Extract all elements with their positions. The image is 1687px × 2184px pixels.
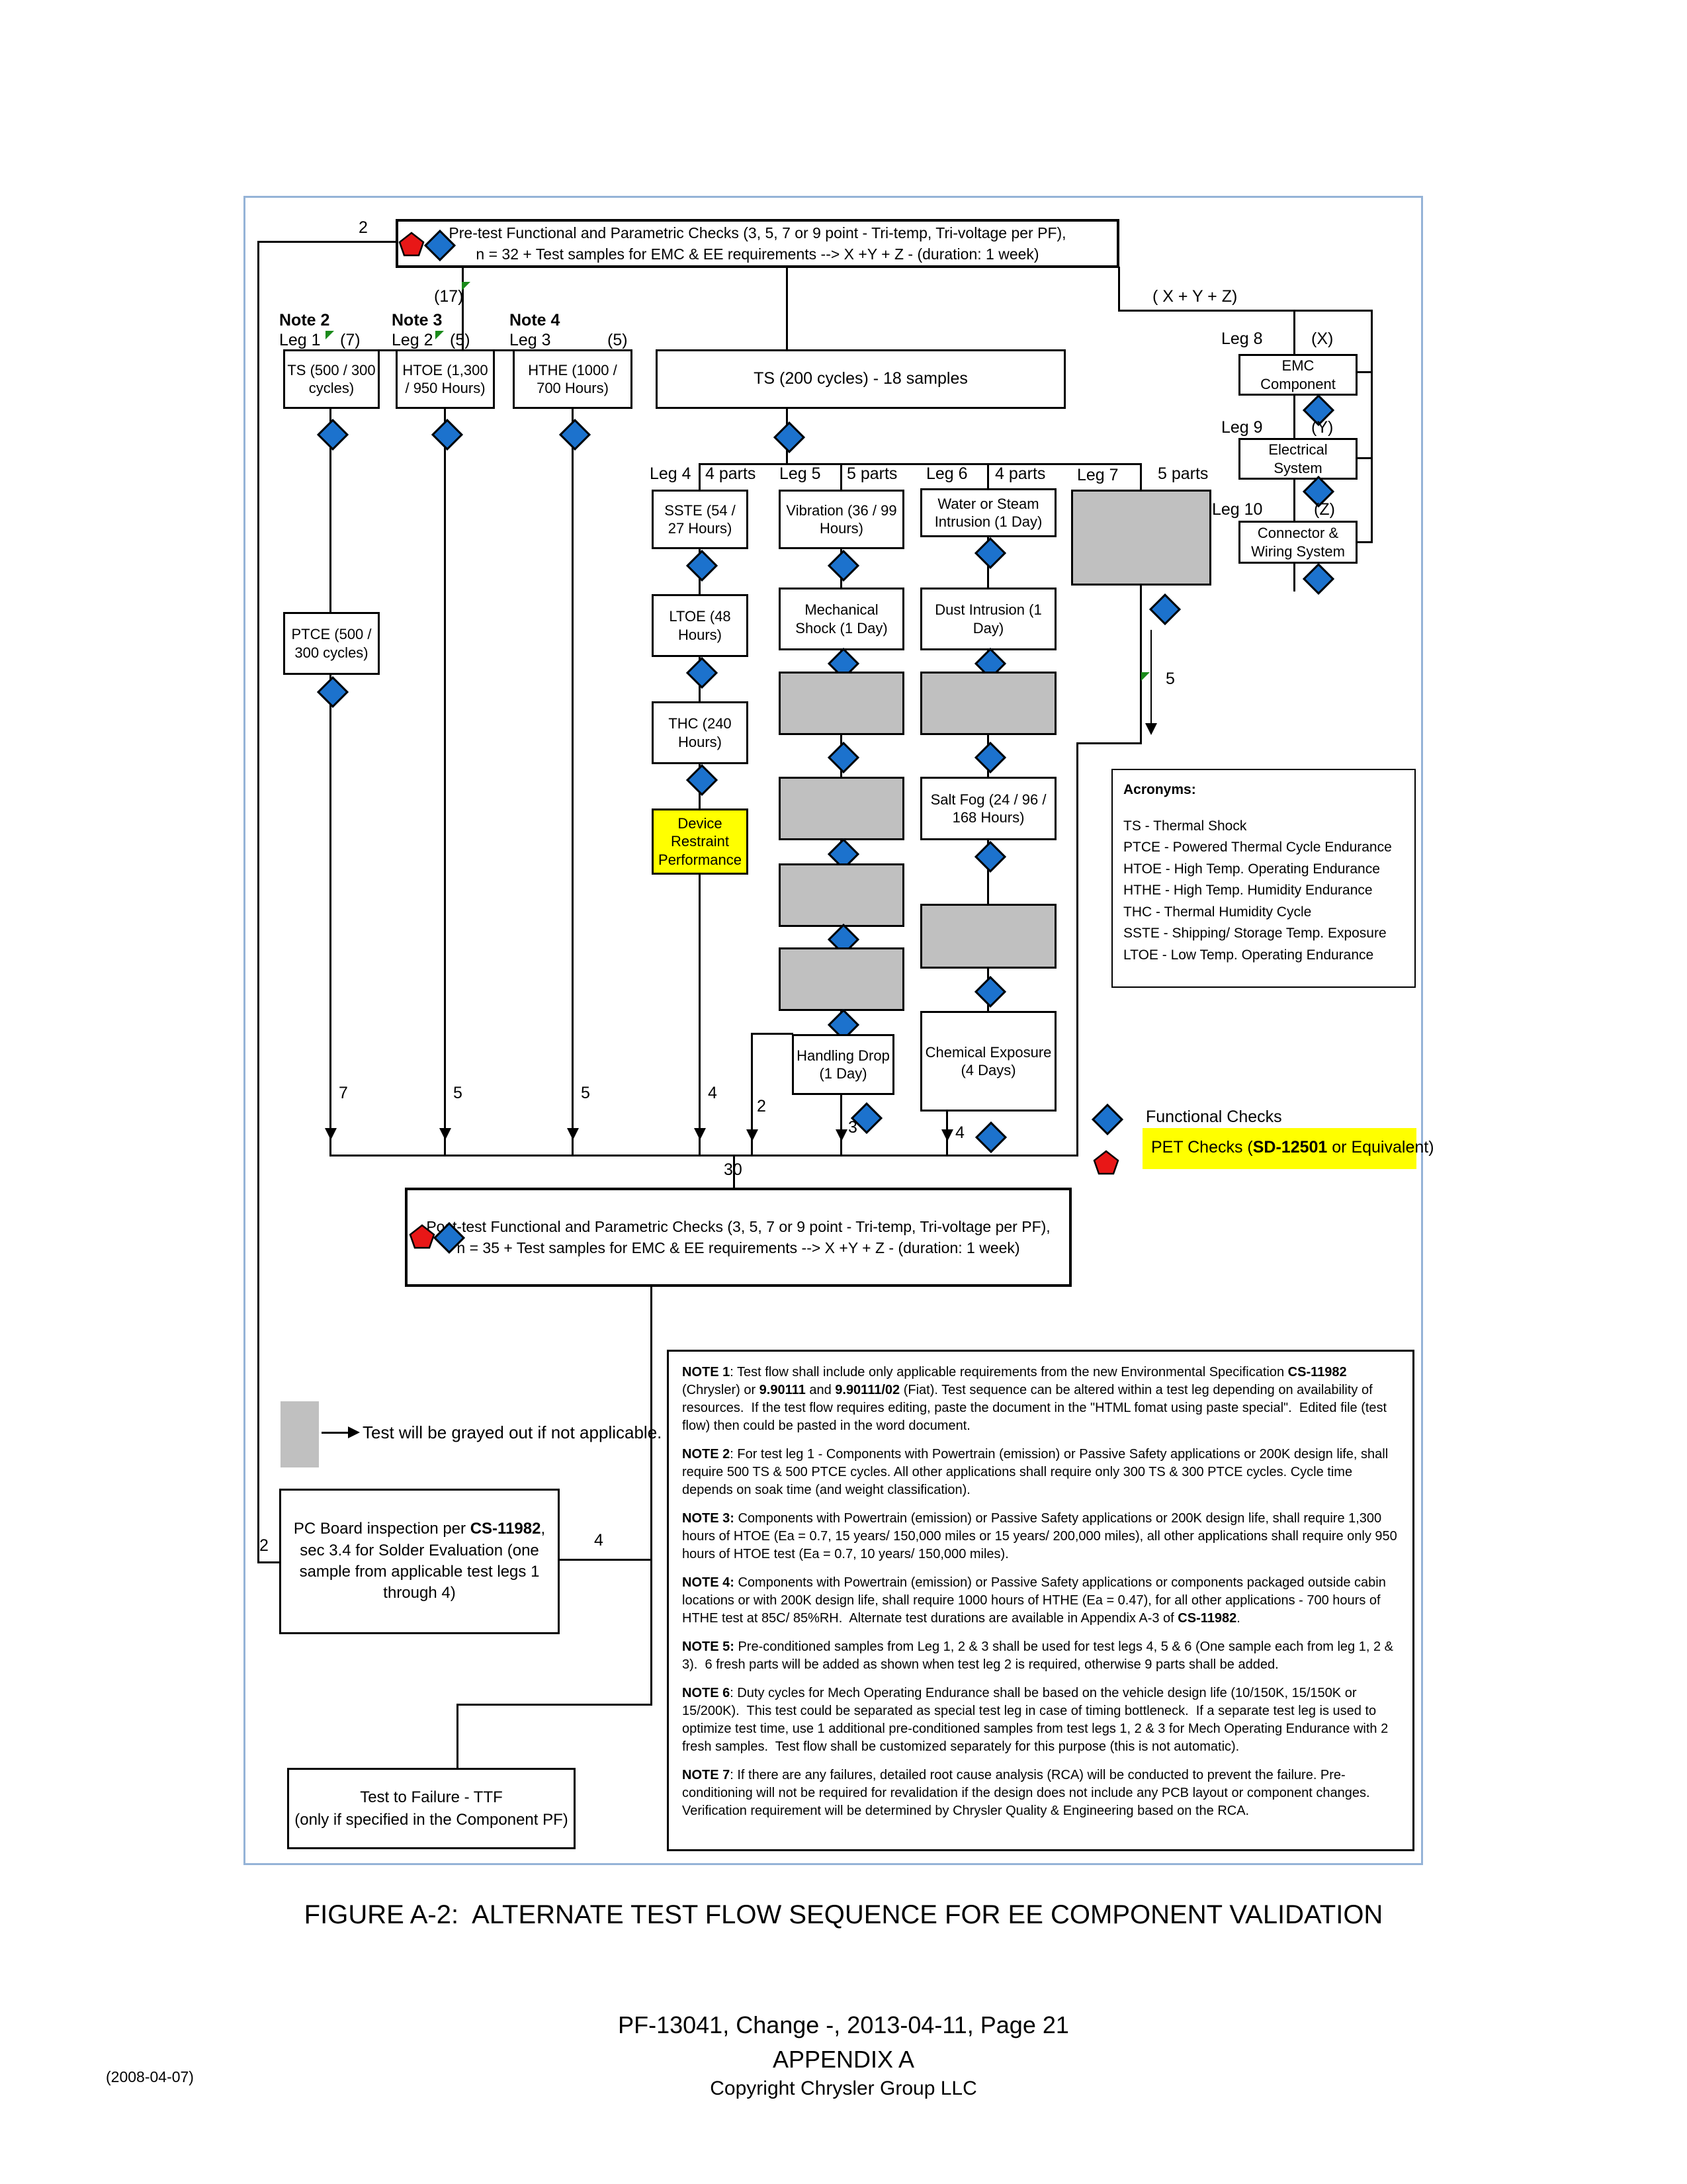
connector-line: [1076, 744, 1078, 1156]
sample-count: 2: [359, 218, 368, 238]
thc-label: THC (240 Hours): [656, 715, 744, 751]
arrow-down-icon: [694, 1128, 706, 1140]
htoe-label: HTOE (1,300 / 950 Hours): [400, 361, 491, 398]
vibration-box: Vibration (36 / 99 Hours): [779, 490, 904, 549]
connector-line: [1118, 310, 1373, 312]
connector-line: [1293, 310, 1295, 354]
handling-drop-label: Handling Drop (1 Day): [796, 1047, 890, 1083]
arrow-down-icon: [325, 1128, 337, 1140]
connector-line: [456, 1706, 458, 1769]
leg7-out-count: 5: [1166, 670, 1175, 689]
ts200-label: TS (200 cycles) - 18 samples: [754, 369, 968, 389]
salt-fog-box: Salt Fog (24 / 96 / 168 Hours): [920, 777, 1057, 840]
acronym-item: THC - Thermal Humidity Cycle: [1123, 902, 1414, 924]
arrow-down-icon: [567, 1128, 579, 1140]
acronym-item: HTHE - High Temp. Humidity Endurance: [1123, 880, 1414, 902]
pc-board-right-count: 4: [594, 1531, 603, 1550]
hthe-label: HTHE (1000 / 700 Hours): [517, 361, 628, 398]
leg1-note: Note 2: [279, 311, 329, 330]
ttf-line2: (only if specified in the Component PF): [294, 1809, 568, 1831]
connector-line: [1358, 457, 1371, 459]
connector-wiring-label: Connector & Wiring System: [1242, 524, 1354, 560]
mech-shock-box: Mechanical Shock (1 Day): [779, 588, 904, 650]
connector-line: [322, 1432, 349, 1434]
dust-label: Dust Intrusion (1 Day): [924, 601, 1053, 637]
ptce-label: PTCE (500 / 300 cycles): [287, 625, 376, 662]
dust-box: Dust Intrusion (1 Day): [920, 588, 1057, 650]
pretest-line1: Pre-test Functional and Parametric Check…: [449, 222, 1066, 243]
handling-drop-box: Handling Drop (1 Day): [792, 1034, 894, 1095]
posttest-checks-box: Post-test Functional and Parametric Chec…: [405, 1188, 1072, 1287]
branch-xyz-label: ( X + Y + Z): [1152, 287, 1237, 306]
figure-title: FIGURE A-2: ALTERNATE TEST FLOW SEQUENCE…: [0, 1900, 1687, 1930]
leg3-count: (5): [607, 331, 628, 350]
leg10-count: (Z): [1314, 500, 1335, 519]
leg1-label: Leg 1: [279, 331, 321, 350]
leg5-skip-count: 2: [757, 1097, 766, 1116]
ts200-box: TS (200 cycles) - 18 samples: [656, 349, 1066, 409]
note-7: NOTE 7: If there are any failures, detai…: [682, 1767, 1399, 1820]
pretest-line2: n = 32 + Test samples for EMC & EE requi…: [476, 243, 1039, 265]
acronym-item: LTOE - Low Temp. Operating Endurance: [1123, 945, 1414, 967]
connector-line: [1293, 564, 1295, 591]
ptce-box: PTCE (500 / 300 cycles): [283, 612, 380, 675]
arrow-down-icon: [746, 1129, 758, 1141]
grayed-test-box: [779, 863, 904, 927]
connector-line: [987, 465, 989, 490]
doc-reference: PF-13041, Change -, 2013-04-11, Page 21: [0, 2011, 1687, 2039]
leg5-count: 5 parts: [847, 464, 897, 484]
note-5: NOTE 5: Pre-conditioned samples from Leg…: [682, 1638, 1399, 1674]
acronym-item: SSTE - Shipping/ Storage Temp. Exposure: [1123, 923, 1414, 945]
legend-functional-label: Functional Checks: [1146, 1108, 1282, 1127]
note-4: NOTE 4: Components with Powertrain (emis…: [682, 1574, 1399, 1628]
connector-line: [699, 465, 701, 490]
grayed-test-box: [779, 672, 904, 735]
grayed-test-box: [779, 947, 904, 1011]
connector-line: [1293, 480, 1295, 521]
connector-line: [752, 1033, 793, 1035]
connector-line: [257, 241, 397, 243]
connector-line: [650, 1287, 652, 1705]
connector-line: [560, 1559, 650, 1561]
pet-check-icon: [398, 232, 425, 257]
connector-line: [572, 409, 574, 1156]
leg1-out-count: 7: [339, 1084, 348, 1103]
copyright-label: Copyright Chrysler Group LLC: [0, 2077, 1687, 2100]
grayed-test-box: [920, 904, 1057, 969]
connector-line: [257, 1561, 281, 1563]
gray-swatch: [281, 1401, 319, 1467]
posttest-line1: Post-test Functional and Parametric Chec…: [426, 1216, 1050, 1237]
water-steam-label: Water or Steam Intrusion (1 Day): [924, 495, 1053, 531]
acronym-item: TS - Thermal Shock: [1123, 816, 1414, 838]
ttf-line1: Test to Failure - TTF: [360, 1786, 503, 1809]
leg2-label: Leg 2: [392, 331, 433, 350]
leg10-label: Leg 10: [1212, 500, 1262, 519]
leg6-label: Leg 6: [926, 464, 968, 484]
emc-label: EMC Component: [1242, 357, 1354, 393]
document-page: Pre-test Functional and Parametric Check…: [0, 0, 1687, 2184]
pc-board-box: PC Board inspection per CS-11982, sec 3.…: [279, 1489, 560, 1634]
ts-box: TS (500 / 300 cycles): [283, 349, 380, 409]
sste-box: SSTE (54 / 27 Hours): [652, 490, 748, 549]
grayed-leg7-box: [1071, 490, 1211, 586]
note-1: NOTE 1: Test flow shall include only app…: [682, 1364, 1399, 1435]
connector-line: [840, 465, 842, 490]
note-2: NOTE 2: For test leg 1 - Components with…: [682, 1446, 1399, 1499]
connector-line: [1076, 742, 1142, 744]
leg2-count: (5): [450, 331, 470, 350]
leg9-label: Leg 9: [1221, 418, 1263, 437]
connector-line: [1358, 371, 1371, 373]
htoe-box: HTOE (1,300 / 950 Hours): [396, 349, 495, 409]
connector-line: [699, 875, 701, 1156]
ts-label: TS (500 / 300 cycles): [287, 361, 376, 398]
chemical-exposure-label: Chemical Exposure (4 Days): [924, 1043, 1053, 1080]
pet-check-icon: [409, 1224, 435, 1249]
thc-box: THC (240 Hours): [652, 701, 748, 764]
appendix-label: APPENDIX A: [0, 2046, 1687, 2074]
acronyms-panel: Acronyms: TS - Thermal Shock PTCE - Powe…: [1111, 769, 1416, 988]
acronyms-title: Acronyms:: [1123, 779, 1414, 801]
arrow-down-icon: [1145, 723, 1157, 735]
connector-line: [1293, 396, 1295, 438]
leg4-out-count: 4: [708, 1084, 717, 1103]
pc-board-left-count: 2: [259, 1536, 269, 1555]
connector-line: [1118, 267, 1120, 311]
leg5-drop-count: 3: [848, 1118, 857, 1137]
connector-line: [1358, 541, 1371, 543]
connector-line: [699, 463, 1142, 465]
leg9-count: (Y): [1311, 418, 1333, 437]
leg7-label: Leg 7: [1077, 466, 1119, 485]
connector-line: [456, 1704, 652, 1706]
leg1-count: (7): [340, 331, 361, 350]
posttest-line2: n = 35 + Test samples for EMC & EE requi…: [456, 1237, 1019, 1258]
grayed-note-label: Test will be grayed out if not applicabl…: [363, 1422, 662, 1443]
leg5-label: Leg 5: [779, 464, 821, 484]
leg8-label: Leg 8: [1221, 329, 1263, 349]
connector-line: [257, 241, 259, 1563]
leg3-label: Leg 3: [509, 331, 551, 350]
connector-wiring-box: Connector & Wiring System: [1238, 521, 1358, 564]
sste-label: SSTE (54 / 27 Hours): [656, 502, 744, 538]
leg7-count: 5 parts: [1158, 464, 1208, 484]
emc-component-box: EMC Component: [1238, 354, 1358, 396]
note-3: NOTE 3: Components with Powertrain (emis…: [682, 1510, 1399, 1563]
pc-board-label: PC Board inspection per CS-11982, sec 3.…: [288, 1518, 551, 1604]
mech-shock-label: Mechanical Shock (1 Day): [783, 601, 900, 637]
note-6: NOTE 6: Duty cycles for Mech Operating E…: [682, 1684, 1399, 1756]
acronym-item: HTOE - High Temp. Operating Endurance: [1123, 859, 1414, 881]
branch-count-17: (17): [434, 287, 463, 306]
leg3-out-count: 5: [581, 1084, 590, 1103]
ltoe-box: LTOE (48 Hours): [652, 594, 748, 657]
ttf-box: Test to Failure - TTF (only if specified…: [287, 1768, 576, 1849]
connector-line: [1140, 586, 1142, 744]
notes-panel: NOTE 1: Test flow shall include only app…: [667, 1350, 1414, 1851]
device-restraint-box: Device Restraint Performance: [652, 808, 748, 875]
connector-line: [1140, 465, 1142, 490]
arrow-right-icon: [348, 1426, 360, 1438]
hthe-box: HTHE (1000 / 700 Hours): [513, 349, 632, 409]
pet-check-icon: [1093, 1150, 1119, 1175]
device-restraint-label: Device Restraint Performance: [656, 814, 744, 869]
leg4-label: Leg 4: [650, 464, 691, 484]
arrow-down-icon: [836, 1129, 847, 1141]
arrow-down-icon: [439, 1128, 451, 1140]
acronym-item: PTCE - Powered Thermal Cycle Endurance: [1123, 837, 1414, 859]
leg8-count: (X): [1311, 329, 1333, 349]
vibration-label: Vibration (36 / 99 Hours): [783, 502, 900, 538]
legend-pet-label: PET Checks (SD-12501 or Equivalent): [1151, 1138, 1434, 1157]
electrical-label: Electrical System: [1242, 441, 1354, 477]
grayed-test-box: [920, 672, 1057, 735]
arrow-down-icon: [941, 1129, 953, 1141]
pretest-checks-box: Pre-test Functional and Parametric Check…: [396, 219, 1119, 268]
total-count: 30: [724, 1160, 742, 1180]
connector-line: [444, 409, 446, 1156]
connector-line: [329, 675, 331, 1156]
connector-line: [786, 267, 788, 349]
connector-line: [1150, 630, 1152, 726]
electrical-system-box: Electrical System: [1238, 438, 1358, 480]
salt-fog-label: Salt Fog (24 / 96 / 168 Hours): [924, 791, 1053, 827]
leg4-count: 4 parts: [705, 464, 756, 484]
comment-marker-icon: [1141, 672, 1150, 681]
chemical-exposure-box: Chemical Exposure (4 Days): [920, 1011, 1057, 1112]
connector-line: [840, 1095, 842, 1156]
leg6-count: 4 parts: [995, 464, 1045, 484]
leg2-note: Note 3: [392, 311, 442, 330]
ltoe-label: LTOE (48 Hours): [656, 607, 744, 644]
comment-marker-icon: [325, 331, 334, 339]
leg2-out-count: 5: [453, 1084, 462, 1103]
date-note: (2008-04-07): [106, 2068, 194, 2086]
leg6-out-count: 4: [955, 1123, 965, 1143]
water-steam-box: Water or Steam Intrusion (1 Day): [920, 488, 1057, 537]
grayed-test-box: [779, 777, 904, 840]
comment-marker-icon: [435, 331, 444, 339]
leg3-note: Note 4: [509, 311, 560, 330]
connector-line: [329, 1155, 1078, 1157]
connector-line: [1371, 310, 1373, 543]
